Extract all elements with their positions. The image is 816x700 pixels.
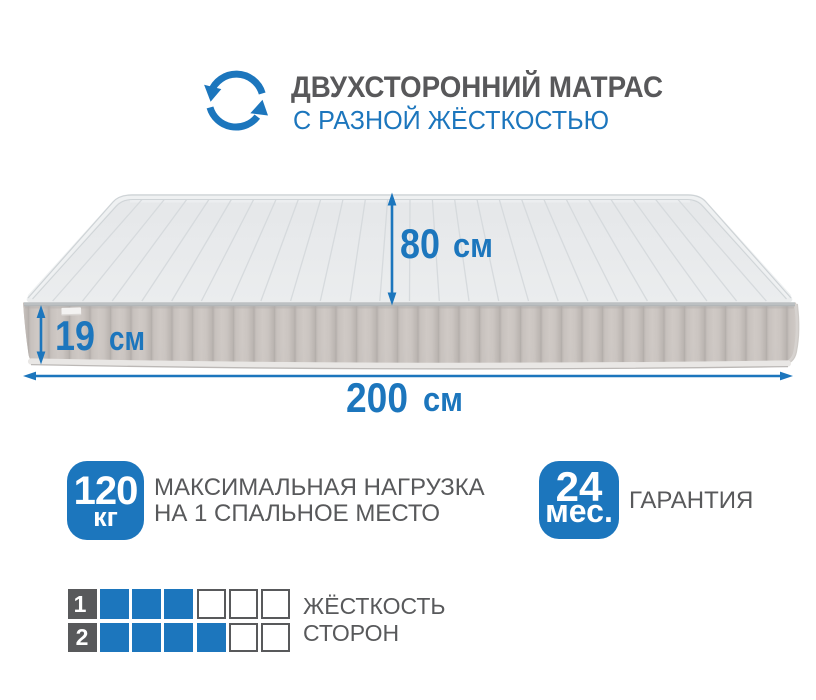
svg-text:см: см	[109, 320, 145, 358]
svg-text:см: см	[453, 227, 493, 265]
svg-text:см: см	[423, 381, 463, 419]
svg-text:80: 80	[400, 220, 440, 267]
svg-text:200: 200	[346, 374, 408, 421]
svg-text:19: 19	[55, 312, 95, 359]
